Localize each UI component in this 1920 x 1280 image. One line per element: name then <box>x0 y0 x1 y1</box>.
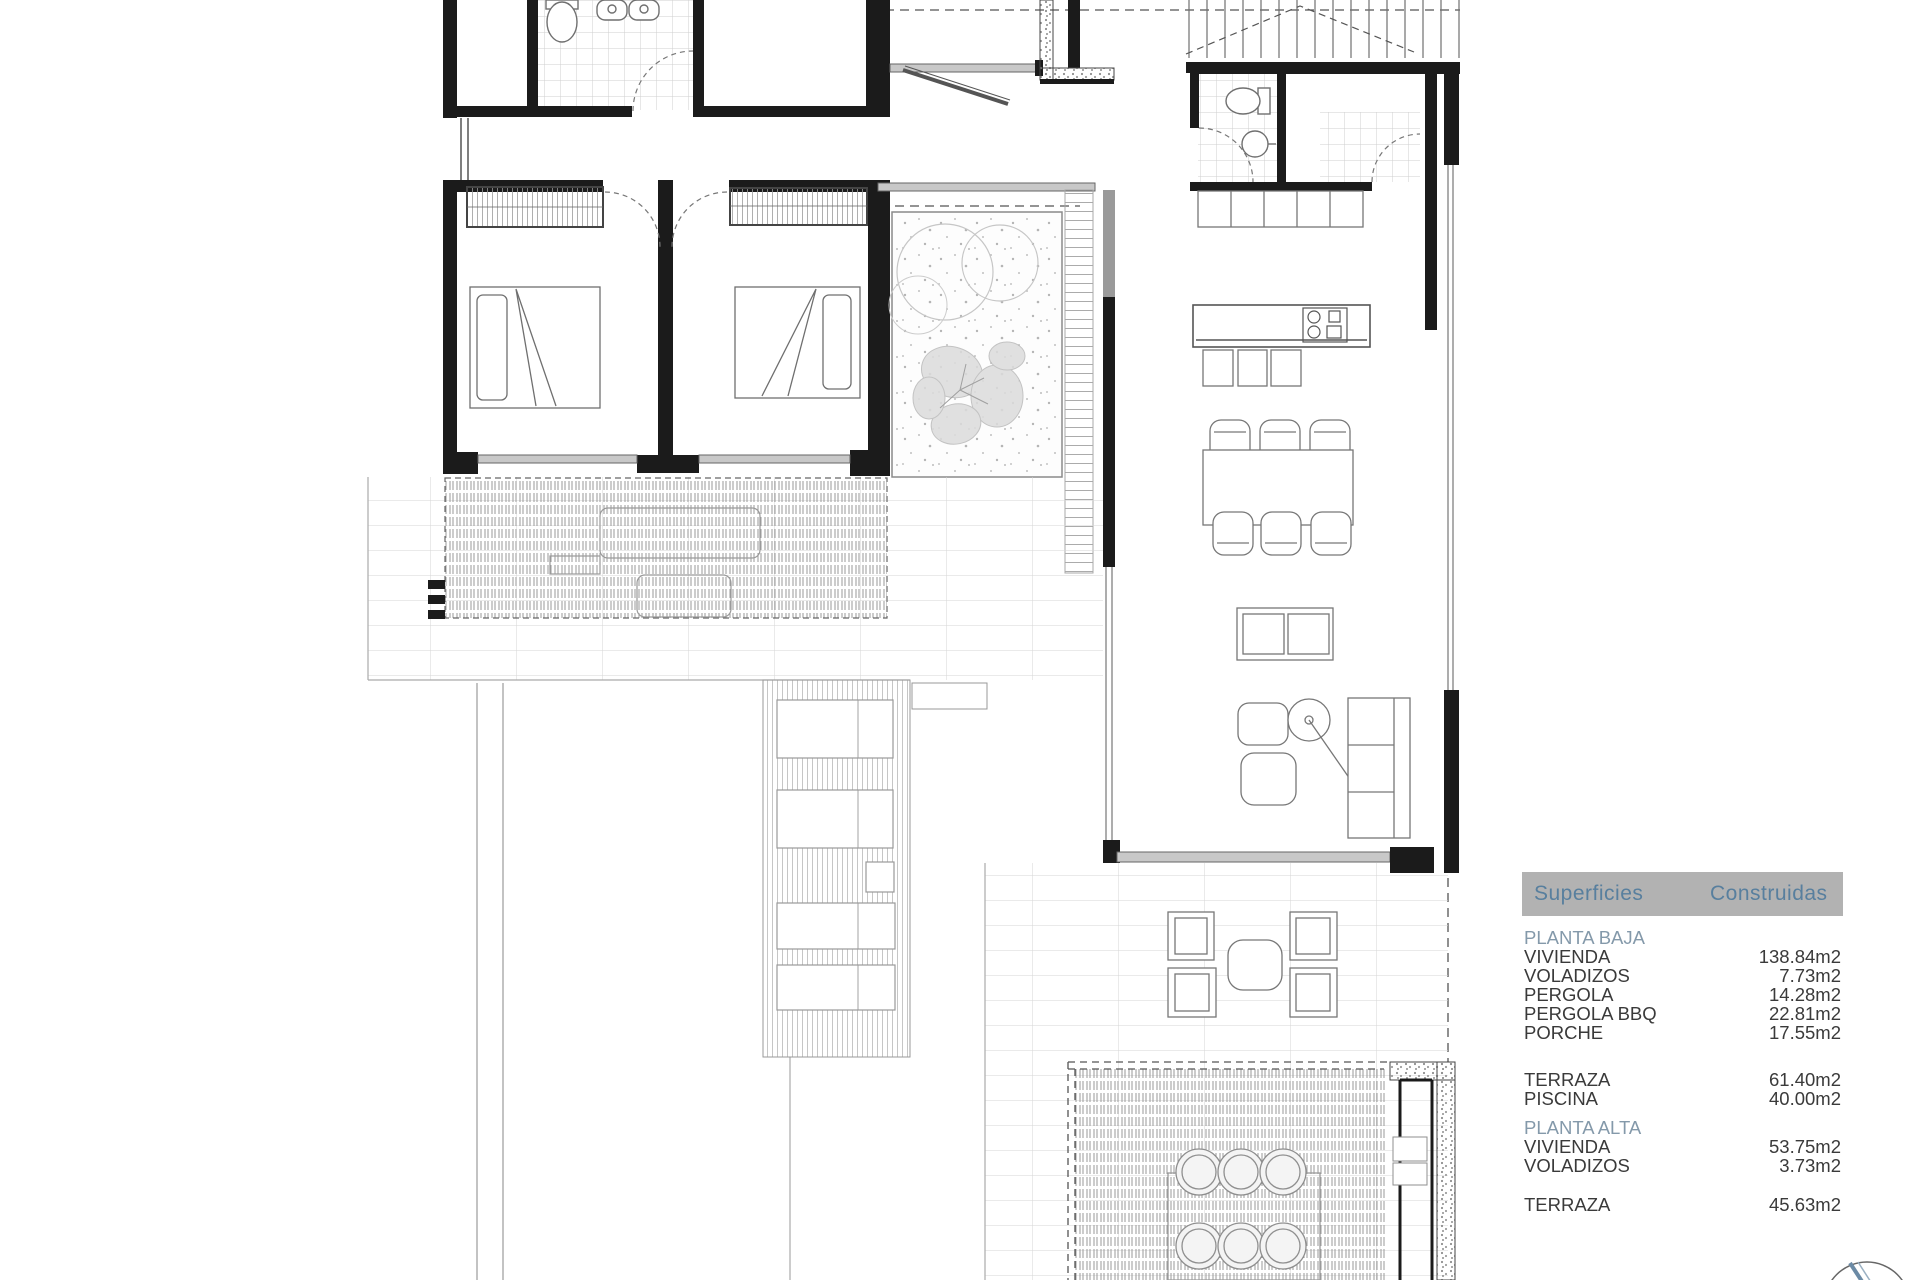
staircase <box>1180 0 1460 73</box>
surfaces-legend: Superficies Construidas PLANTA BAJA VIVI… <box>1522 872 1843 1214</box>
toilet-icon <box>546 0 578 42</box>
pantry <box>1320 112 1420 182</box>
entry-area <box>890 0 1114 104</box>
armchair <box>1238 703 1288 745</box>
legend-row: TERRAZA 45.63m2 <box>1522 1195 1843 1214</box>
deck-strip <box>763 680 987 1280</box>
living-room-furniture <box>1237 608 1410 838</box>
bathroom-block-top-left <box>443 0 890 180</box>
dining-set <box>1203 420 1353 555</box>
sofa-three-seat <box>1348 698 1410 838</box>
legend-row: PERGOLA 14.28m2 <box>1522 985 1843 1004</box>
legend-row: PISCINA 40.00m2 <box>1522 1089 1843 1108</box>
legend-row: PORCHE 17.55m2 <box>1522 1023 1843 1042</box>
legend-row: VIVIENDA 53.75m2 <box>1522 1137 1843 1156</box>
legend-header: Superficies Construidas <box>1522 872 1843 916</box>
courtyard-planter <box>878 183 1095 477</box>
legend-header-built: Construidas <box>1710 882 1828 906</box>
outdoor-table <box>1228 940 1282 990</box>
stair-treads <box>1180 0 1460 58</box>
sofa-two-seat <box>1237 608 1333 660</box>
legend-row: VOLADIZOS 3.73m2 <box>1522 1156 1843 1175</box>
bed-icon <box>470 287 600 408</box>
glass-facade-west <box>1106 567 1112 840</box>
legend-header-surfaces: Superficies <box>1534 882 1643 906</box>
armchair <box>1241 753 1296 805</box>
glass-facade-east <box>1448 165 1453 690</box>
bedroom-block <box>443 180 890 476</box>
dining-chairs-bottom <box>1213 512 1351 555</box>
legend-row: TERRAZA 61.40m2 <box>1522 1070 1843 1089</box>
bed-icon <box>735 287 860 398</box>
legend-row: VIVIENDA 138.84m2 <box>1522 947 1843 966</box>
floor-lamp-icon <box>1288 699 1352 782</box>
legend-row: PERGOLA BBQ 22.81m2 <box>1522 1004 1843 1023</box>
kitchen-island <box>1193 305 1370 347</box>
north-arrow-icon <box>1824 1262 1910 1280</box>
hallway-closet <box>1198 191 1363 227</box>
glass-facade-south <box>1117 852 1390 862</box>
insulated-wall <box>1040 0 1114 84</box>
section-title-planta-baja: PLANTA BAJA <box>1522 928 1843 947</box>
guest-bathroom <box>1190 73 1286 185</box>
kitchen-stools <box>1203 350 1301 386</box>
driveway-edges <box>477 683 503 1280</box>
pergola-posts <box>428 580 445 619</box>
section-title-planta-alta: PLANTA ALTA <box>1522 1118 1843 1137</box>
pergola <box>428 478 887 619</box>
toilet-icon <box>1226 88 1270 114</box>
courtyard-glass <box>878 183 1095 191</box>
legend-row: VOLADIZOS 7.73m2 <box>1522 966 1843 985</box>
